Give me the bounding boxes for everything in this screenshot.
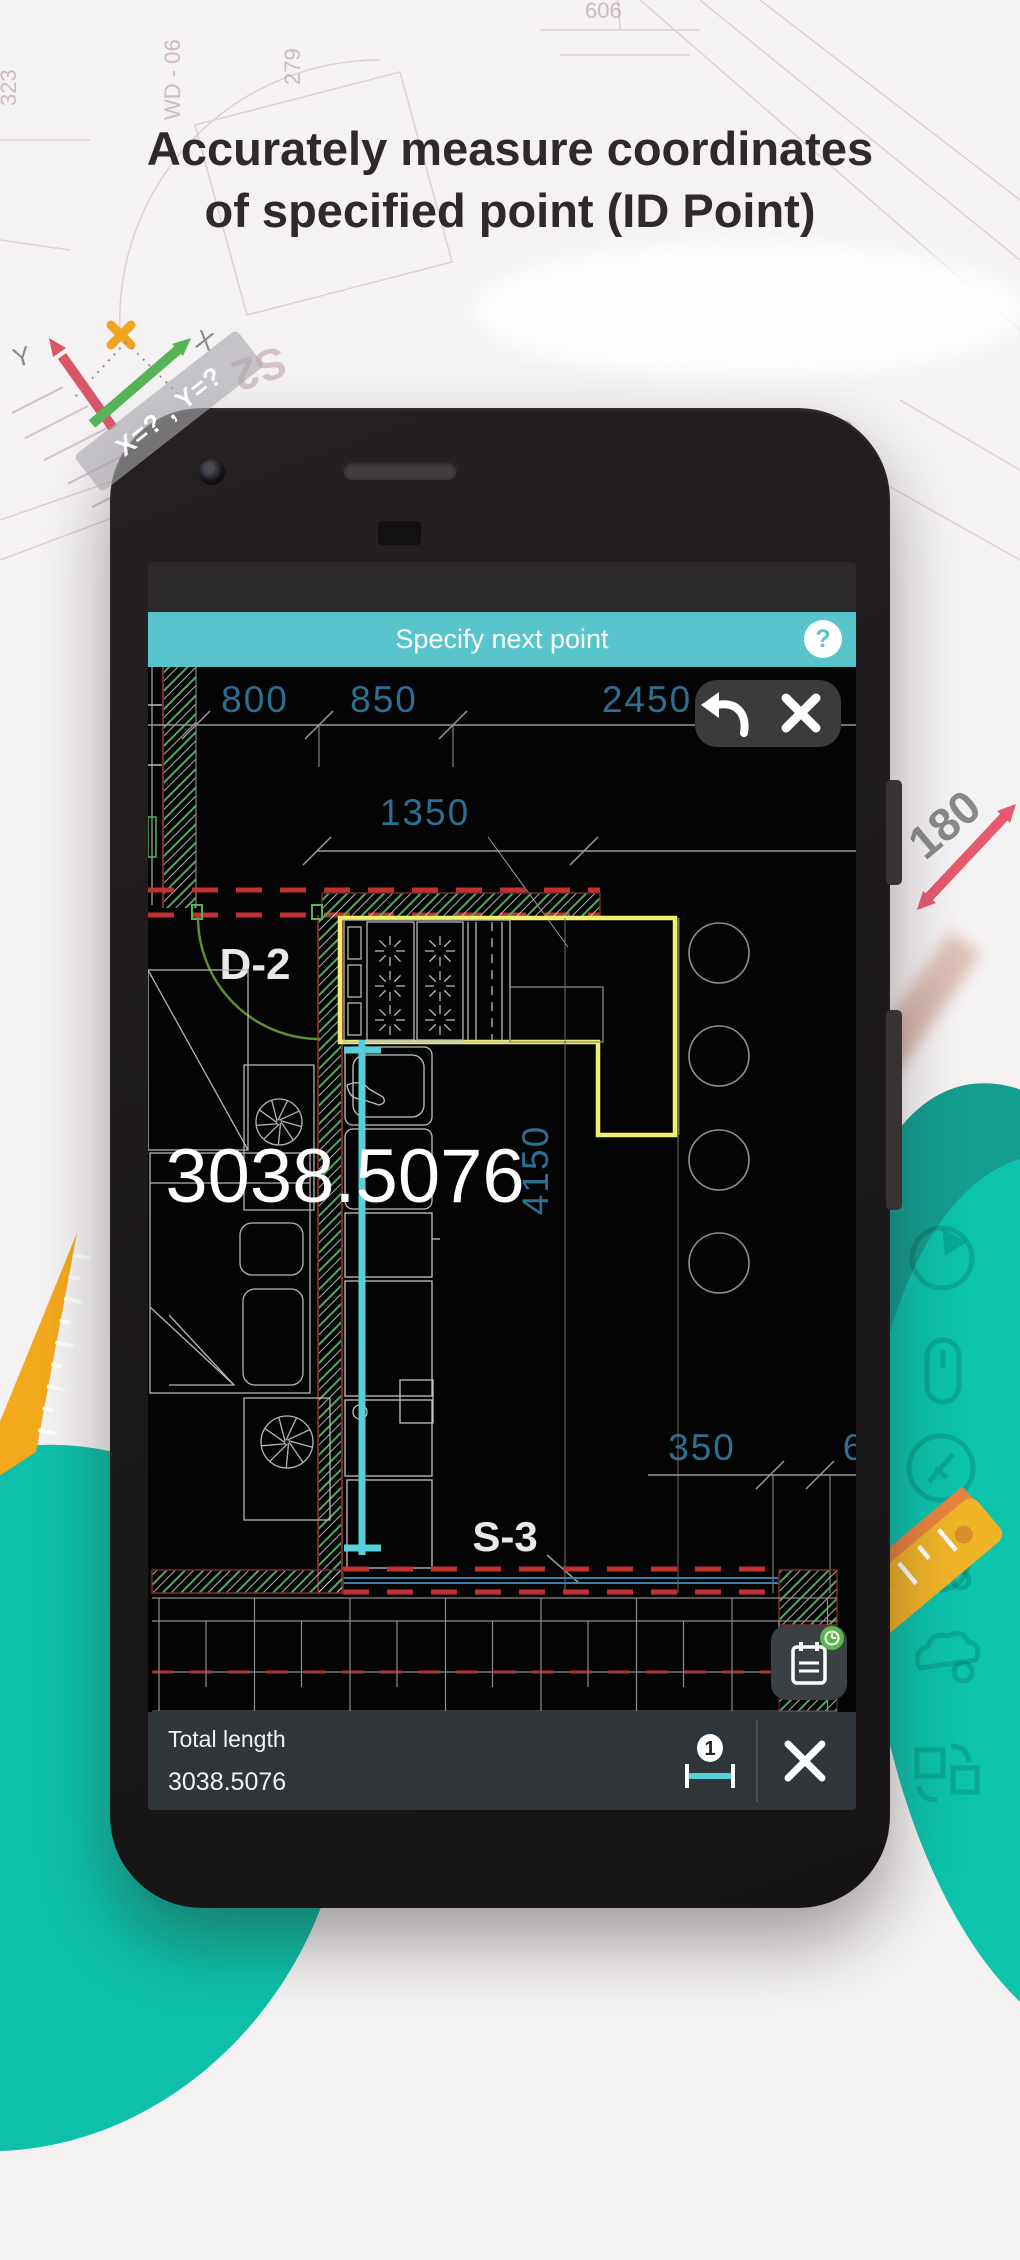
close-icon bbox=[780, 1736, 830, 1786]
earpiece-speaker bbox=[343, 461, 457, 480]
dim-1350: 1350 bbox=[380, 792, 470, 833]
segment-count-button[interactable]: 1 bbox=[682, 1734, 738, 1795]
paper-sheet-decor bbox=[470, 240, 1020, 380]
toolbar-pill bbox=[695, 680, 841, 747]
command-prompt-bar: Specify next point ? bbox=[148, 612, 856, 667]
help-button[interactable]: ? bbox=[804, 620, 842, 658]
segment-count-badge: 1 bbox=[704, 1738, 715, 1760]
clock-badge-icon bbox=[820, 1626, 844, 1650]
measurement-value: 3038.5076 bbox=[165, 1134, 524, 1219]
axis-y-label: Y bbox=[10, 340, 35, 373]
sensor-slot bbox=[378, 521, 421, 545]
power-button bbox=[886, 1010, 902, 1210]
phone-mockup: Specify next point ? bbox=[110, 408, 890, 1908]
headline: Accurately measure coordinates of specif… bbox=[0, 118, 1020, 242]
total-length-label: Total length bbox=[168, 1726, 286, 1753]
bg-num-323: 323 bbox=[0, 69, 21, 106]
angle-arrow-decor: 180 bbox=[898, 780, 1016, 910]
question-icon: ? bbox=[815, 625, 830, 654]
headline-line2: of specified point (ID Point) bbox=[0, 180, 1020, 242]
triangle-ruler-icon bbox=[0, 1233, 90, 1495]
door-label: D-2 bbox=[220, 940, 291, 989]
close-button[interactable] bbox=[780, 1736, 830, 1791]
prompt-title: Specify next point bbox=[395, 624, 608, 655]
volume-button bbox=[886, 780, 902, 885]
dim-partial: 6 bbox=[843, 1427, 856, 1468]
bar-divider bbox=[756, 1720, 758, 1802]
dim-850: 850 bbox=[350, 679, 418, 720]
dim-2450: 2450 bbox=[602, 679, 692, 720]
point-cross-icon bbox=[111, 325, 131, 345]
dim-800: 800 bbox=[221, 679, 289, 720]
notes-button[interactable] bbox=[771, 1625, 847, 1700]
angle-label: 180 bbox=[898, 780, 990, 869]
calendar-icon bbox=[771, 1625, 847, 1700]
section-label: S-3 bbox=[472, 1513, 537, 1560]
bg-label-wd06: WD - 06 bbox=[160, 39, 185, 120]
cad-canvas[interactable]: 800 850 2450 1350 4150 350 6 bbox=[148, 667, 856, 1712]
total-length-value: 3038.5076 bbox=[168, 1768, 286, 1797]
headline-line1: Accurately measure coordinates bbox=[0, 118, 1020, 180]
result-bar: Total length 3038.5076 1 bbox=[148, 1712, 856, 1810]
bg-num-279: 279 bbox=[280, 48, 305, 85]
bg-num-606: 606 bbox=[585, 0, 622, 23]
phone-screen: Specify next point ? bbox=[148, 562, 856, 1810]
status-bar bbox=[148, 562, 856, 612]
